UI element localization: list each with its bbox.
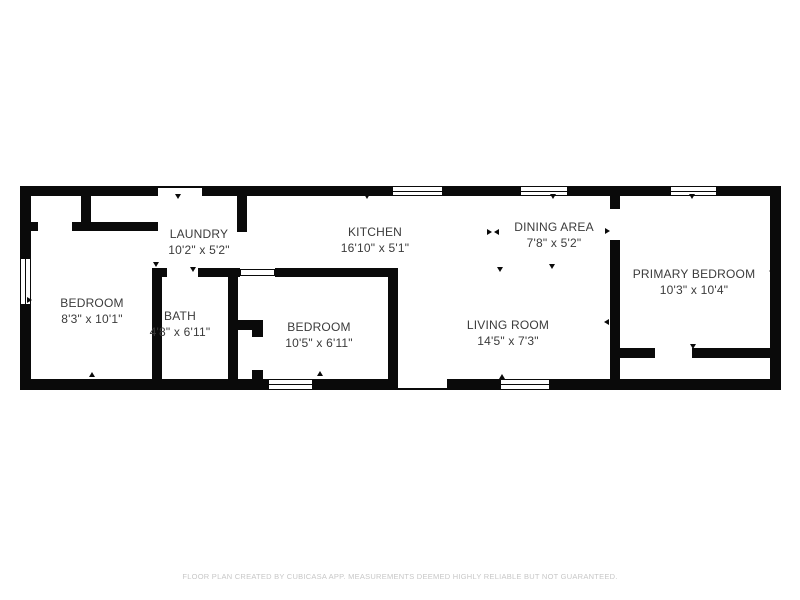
wall-segment <box>20 305 31 390</box>
room-name: PRIMARY BEDROOM <box>633 266 756 282</box>
wall-segment <box>388 277 398 379</box>
wall-segment <box>692 348 770 358</box>
wall-segment <box>610 196 620 209</box>
wall-segment <box>238 320 263 330</box>
door-direction-marker <box>87 225 93 230</box>
wall-segment <box>198 268 240 277</box>
wall-segment <box>443 186 520 196</box>
window <box>268 379 313 390</box>
room-dimensions: 10'3" x 10'4" <box>633 282 756 298</box>
room-dimensions: 4'8" x 6'11" <box>150 324 211 340</box>
door-direction-marker <box>605 228 610 234</box>
door-direction-marker <box>27 297 32 303</box>
room-name: LAUNDRY <box>168 226 230 242</box>
window-pane <box>671 191 716 192</box>
wall-segment <box>550 379 781 390</box>
footer-disclaimer: FLOOR PLAN CREATED BY CUBICASA APP. MEAS… <box>182 572 617 581</box>
wall-segment <box>20 186 158 196</box>
window-pane <box>393 191 442 192</box>
room-name: LIVING ROOM <box>467 317 549 333</box>
room-dimensions: 10'2" x 5'2" <box>168 242 230 258</box>
door-direction-marker <box>84 206 89 212</box>
door-opening <box>158 186 202 188</box>
room-name: BEDROOM <box>285 319 353 335</box>
room-dimensions: 7'8" x 5'2" <box>514 235 594 251</box>
wall-segment <box>20 379 268 390</box>
door-direction-marker <box>317 371 323 376</box>
room-label-laundry: LAUNDRY10'2" x 5'2" <box>168 226 230 258</box>
wall-segment <box>152 268 167 277</box>
wall-segment <box>252 330 263 337</box>
room-label-primary-bedroom: PRIMARY BEDROOM10'3" x 10'4" <box>633 266 756 298</box>
room-name: KITCHEN <box>341 224 409 240</box>
door-direction-marker <box>230 294 235 300</box>
room-label-bath: BATH4'8" x 6'11" <box>150 308 211 340</box>
door-direction-marker <box>689 194 695 199</box>
room-label-bedroom-2: BEDROOM10'5" x 6'11" <box>285 319 353 351</box>
door-direction-marker <box>612 268 617 274</box>
door-direction-marker <box>89 372 95 377</box>
door-direction-marker <box>280 268 286 273</box>
door-direction-marker <box>549 264 555 269</box>
room-name: BEDROOM <box>60 295 123 311</box>
wall-segment <box>447 379 500 390</box>
floor-plan: BEDROOM8'3" x 10'1"LAUNDRY10'2" x 5'2"BA… <box>0 0 800 600</box>
wall-segment <box>20 186 31 258</box>
door-direction-marker <box>190 267 196 272</box>
room-label-dining-area: DINING AREA7'8" x 5'2" <box>514 219 594 251</box>
door-direction-marker <box>364 194 370 199</box>
door-direction-marker <box>487 229 492 235</box>
door-opening <box>398 388 447 390</box>
room-label-bedroom-1: BEDROOM8'3" x 10'1" <box>60 295 123 327</box>
wall-segment <box>313 379 398 390</box>
room-dimensions: 14'5" x 7'3" <box>467 333 549 349</box>
room-name: DINING AREA <box>514 219 594 235</box>
door-direction-marker <box>494 229 499 235</box>
window <box>500 379 550 390</box>
window-pane <box>269 384 312 385</box>
room-name: BATH <box>150 308 211 324</box>
wall-segment <box>252 370 263 379</box>
wall-segment <box>72 222 158 231</box>
window <box>520 186 568 196</box>
door-direction-marker <box>153 262 159 267</box>
window-pane <box>521 191 567 192</box>
door-direction-marker <box>604 319 609 325</box>
door-direction-marker <box>690 344 696 349</box>
door-direction-marker <box>239 223 245 228</box>
room-label-living-room: LIVING ROOM14'5" x 7'3" <box>467 317 549 349</box>
wall-segment <box>610 240 620 379</box>
room-label-kitchen: KITCHEN16'10" x 5'1" <box>341 224 409 256</box>
room-dimensions: 16'10" x 5'1" <box>341 240 409 256</box>
door-direction-marker <box>175 194 181 199</box>
door-direction-marker <box>499 374 505 379</box>
window-pane <box>501 384 549 385</box>
wall-segment <box>31 222 38 231</box>
floor-plan-canvas: BEDROOM8'3" x 10'1"LAUNDRY10'2" x 5'2"BA… <box>0 0 800 600</box>
window <box>392 186 443 196</box>
door-direction-marker <box>769 268 774 274</box>
wall-segment <box>568 186 670 196</box>
door-direction-marker <box>497 267 503 272</box>
wall-segment <box>620 348 655 358</box>
door-opening <box>240 269 275 276</box>
window-pane <box>25 259 26 304</box>
wall-segment <box>228 277 238 379</box>
room-dimensions: 8'3" x 10'1" <box>60 311 123 327</box>
wall-segment <box>770 186 781 390</box>
room-dimensions: 10'5" x 6'11" <box>285 335 353 351</box>
wall-segment <box>275 268 398 277</box>
door-direction-marker <box>550 194 556 199</box>
